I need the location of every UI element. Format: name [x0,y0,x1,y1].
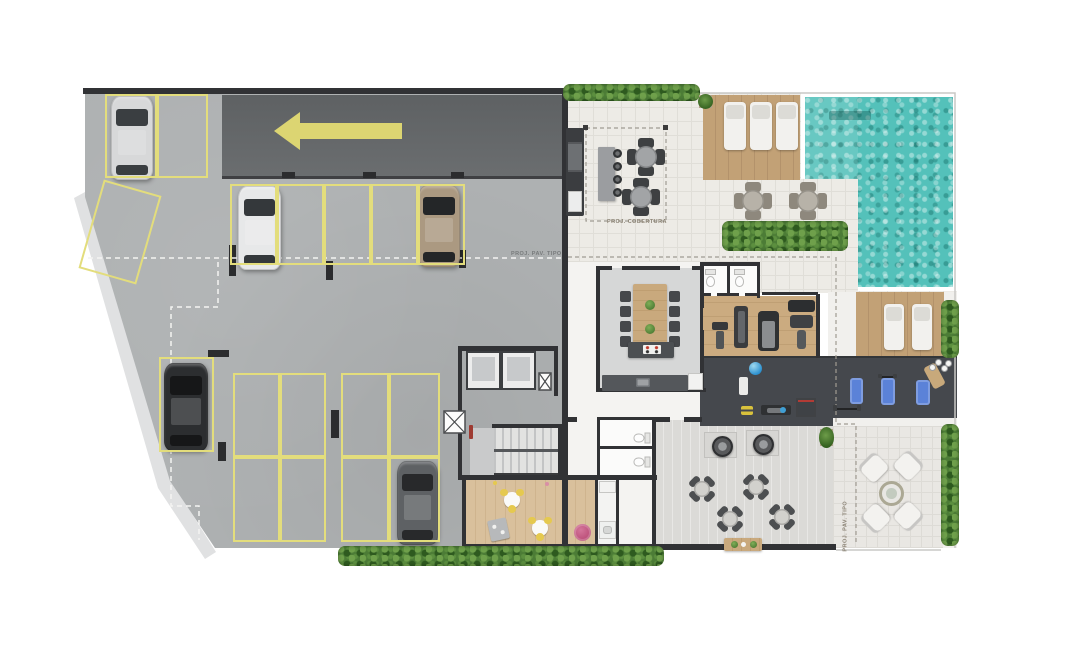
plant-pot [820,429,833,446]
dining-table [736,467,776,507]
weight-bench [761,405,791,415]
gym-floor [702,296,818,358]
amenity-edges [567,93,955,550]
grill-pad [746,430,779,456]
kitchenette-floor [597,479,619,545]
dumbbells-yellow [741,406,753,415]
hedge [941,424,959,546]
parking-garage-floor [85,93,565,548]
pool-table [789,182,827,220]
kettlebell-blue [780,407,786,413]
parking-spot [341,373,389,457]
parking-spot [233,373,280,457]
bar-stool [613,188,622,197]
bar-stool [613,175,622,184]
grill-pad [704,432,737,458]
bar-stool [613,162,622,171]
side-sun-deck [856,292,944,358]
car-silver [111,96,153,180]
car-tan [418,185,460,267]
sun-lounger [750,102,772,150]
kids-decor [493,481,497,485]
sidewalk-curb [68,188,220,562]
parking-spot [371,184,418,265]
lounge-armchair [892,449,925,482]
exercise-ball [749,362,762,375]
gym-multi-station [788,300,815,350]
east-terrace-floor [828,292,957,548]
party-room-floor [598,268,704,390]
hedge [338,546,664,566]
refrigerator [599,481,616,493]
toilet [633,456,651,469]
drive-lane [222,95,563,179]
kitchen-counter [602,375,688,391]
dining-table [710,499,750,539]
gym-treadmill [758,311,779,351]
lounge-armchair [859,502,892,535]
bathrooms-floor [599,419,653,477]
stair-landing [470,428,494,476]
kitchen-island [628,342,674,358]
shaft-x-boxes [444,373,551,433]
drive-direction-arrow-icon [274,112,402,150]
sun-lounger [776,102,798,150]
kids-table [529,517,551,539]
projection-dashed-lines [88,125,856,545]
toilet [733,269,746,288]
parking-spot [105,94,157,178]
swimming-pool [801,93,957,291]
parking-spot [159,357,214,452]
toilet [633,432,651,445]
exercise-mat-blue [916,380,930,405]
sun-lounger [912,304,932,350]
parking-spot [280,457,326,542]
parking-spot [389,457,440,542]
exercise-mat-blue [881,378,895,405]
label-proj-pav-tipo: PROJ. PAV. TIPO [511,251,562,258]
parking-spot [280,373,326,457]
parking-spot [157,94,208,178]
floor-plan-canvas: PROJ. COBERTURAPROJ. PAV. TIPOPROJ. PAV.… [0,0,1080,648]
round-grill [753,434,774,455]
fire-extinguisher [469,425,473,439]
laundry-sink [599,521,616,539]
pink-pouf [574,524,591,541]
plan-lines-overlay [0,0,1080,648]
lane-edge [222,176,563,179]
pool-sun-deck [703,95,800,180]
car-white [238,186,281,270]
label-proj-pav-tipo-vertical: PROJ. PAV. TIPO [842,501,849,552]
terrace-table [622,178,660,216]
exercise-mat-tan [923,362,946,389]
wheel-stops-and-columns [208,172,466,461]
parking-spot [341,457,389,542]
kids-table [501,489,523,511]
exercise-mat-blue [850,378,863,404]
workout-mat-area-extension [700,418,833,426]
party-dining-table [620,284,680,350]
sun-lounger [724,102,746,150]
workout-mat-area [700,356,957,418]
staircase [494,428,562,476]
dining-table [762,497,802,537]
bar-counter [598,147,615,201]
label-proj-cobertura: PROJ. COBERTURA [607,219,667,226]
furniture-layer: PROJ. COBERTURAPROJ. PAV. TIPOPROJ. PAV.… [0,0,1080,648]
free-weights [930,360,950,373]
hedge [563,84,700,101]
barbell [878,373,897,379]
bbq-counter [566,128,584,216]
squat-rack [796,398,816,417]
hedge [941,300,959,358]
bar-stool [613,149,622,158]
lounge-armchair [857,451,890,484]
dining-table [682,469,722,509]
kids-playroom-floor [466,478,596,546]
toilet [704,269,717,288]
buffet-table [724,538,762,551]
hedge [722,221,848,251]
refrigerator [688,373,703,390]
gym-bathrooms-floor [702,266,760,296]
parking-spot-angled [78,180,161,285]
pool-table [734,182,772,220]
parking-spot [324,184,371,265]
pool-water [805,97,953,287]
rooftop-terrace-floor [565,93,957,293]
exercise-mat-white [739,377,748,395]
gym-machine-rack [712,322,728,349]
round-grill [712,436,733,457]
gym-machine-tower [734,306,748,348]
parking-spot [233,457,280,542]
elevators [467,352,535,389]
walls [83,88,836,550]
plant-pot [699,95,712,108]
toy-box [487,517,510,541]
terrace-table [627,138,665,176]
parking-spot [230,184,277,265]
car-black [164,363,208,451]
dining-terrace-floor [654,420,833,548]
lounge-corner-floor [833,426,943,548]
parking-spot [418,184,465,265]
car-gray [397,461,438,545]
corridor-floor [565,262,706,548]
kids-decor [545,482,549,486]
parking-spot [389,373,440,457]
barbell [833,404,861,412]
parking-spot [277,184,324,265]
sun-lounger [884,304,904,350]
lounge-armchair [892,500,925,533]
lounge-fire-table [879,481,904,506]
